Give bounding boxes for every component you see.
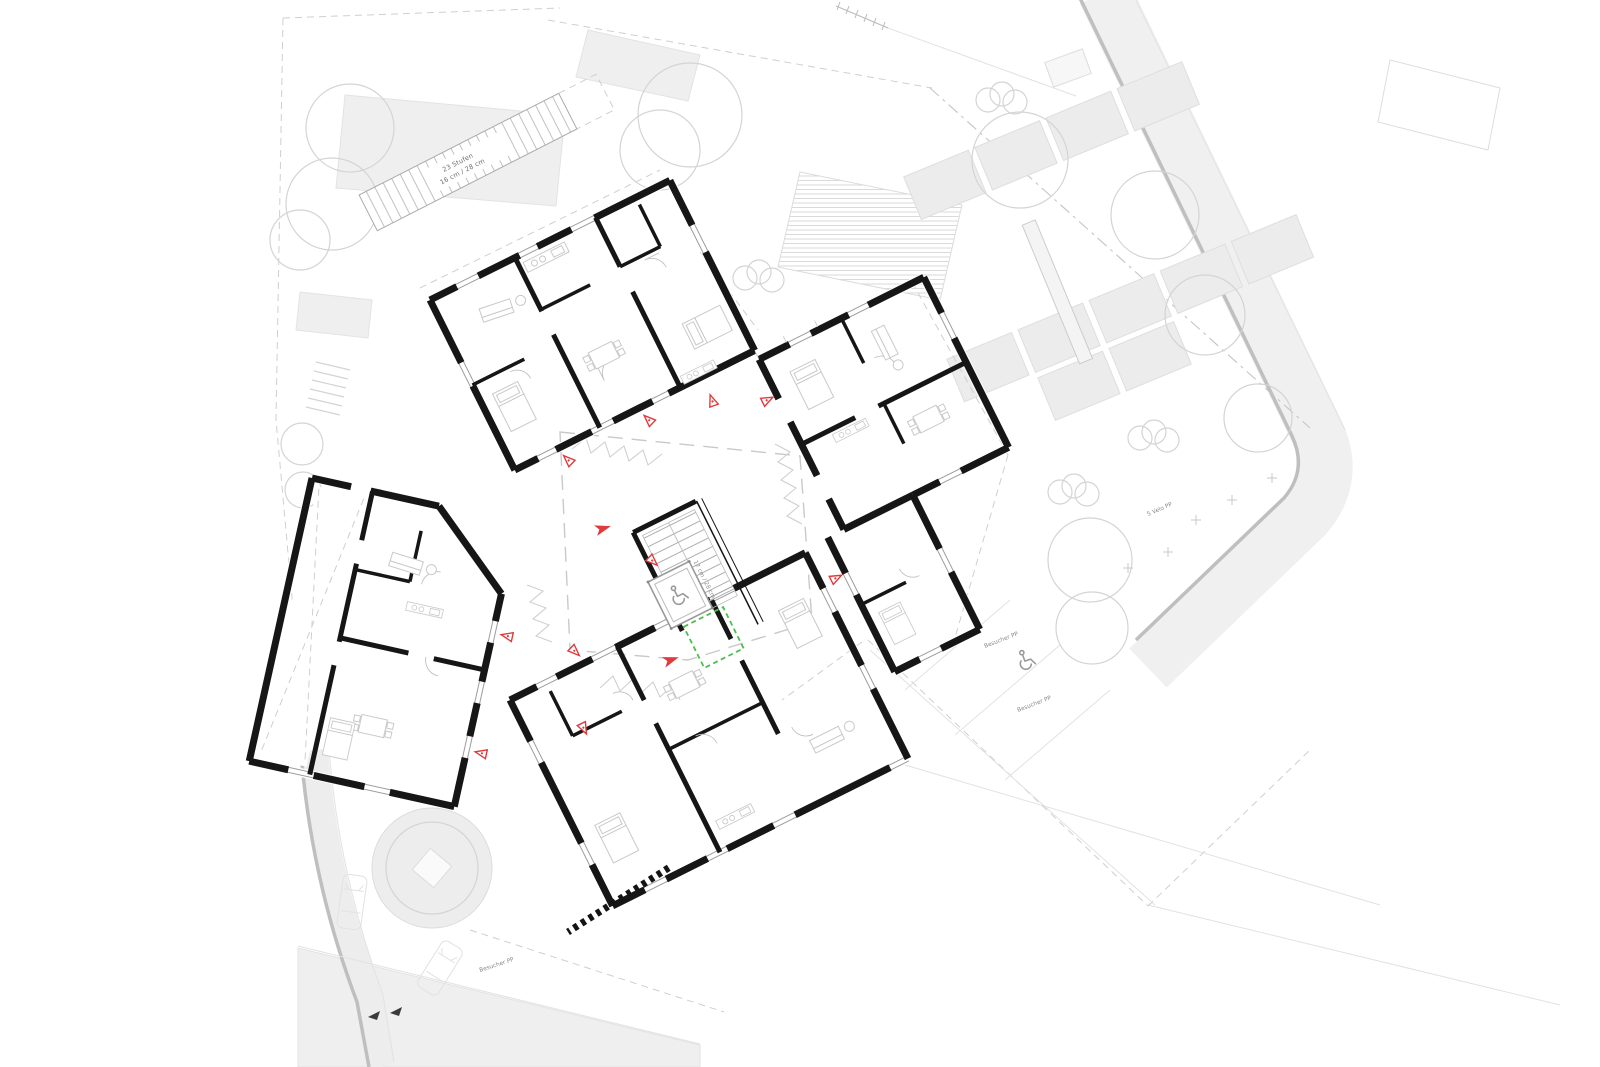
adjacent-building [296, 292, 372, 338]
playground [372, 808, 492, 928]
site-context: Besucher PP Besucher PP Besucher PP 5 Ve… [270, 0, 1560, 1067]
utility-box [1045, 49, 1091, 87]
visitor-parking-label-south: Besucher PP [479, 957, 515, 974]
floor-plan-canvas: Besucher PP Besucher PP Besucher PP 5 Ve… [0, 0, 1600, 1067]
small-exterior-stair [306, 362, 350, 415]
wing-west [249, 478, 537, 813]
main-entrance-arrow [594, 521, 612, 536]
bike-parking-label: 5 Velo PP [1146, 502, 1173, 518]
visitor-parking-label: Besucher PP [1017, 695, 1053, 714]
visitor-parking-label: Besucher PP [984, 631, 1020, 650]
adjacent-building-outline [1378, 60, 1500, 150]
visitor-parking-southeast: Besucher PP Besucher PP [870, 600, 1155, 905]
entrance-arrow [560, 452, 575, 466]
entrance-arrow [706, 393, 718, 407]
entrance-arrow [500, 630, 513, 641]
entrance-arrow [474, 747, 487, 758]
fence-band [566, 865, 671, 935]
entrance-arrow [641, 412, 656, 426]
survey-tick-line [836, 2, 888, 30]
main-entrance-arrow [662, 652, 681, 668]
adjacent-building [576, 30, 700, 101]
wheelchair-icon [1016, 648, 1036, 671]
